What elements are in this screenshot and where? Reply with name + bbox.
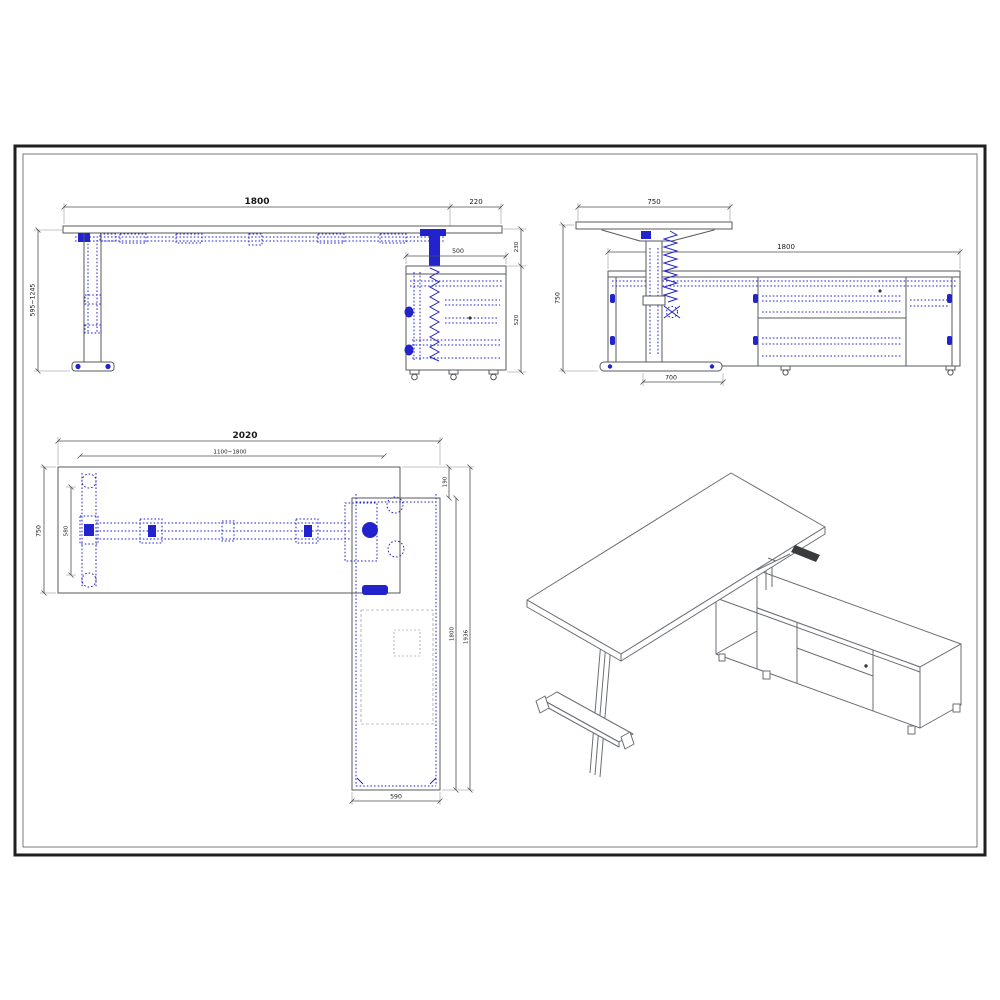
technical-drawing: 1800 220 bbox=[0, 0, 1000, 1000]
front-cabinet-width-label: 500 bbox=[452, 248, 464, 255]
iso-credenza-foot bbox=[719, 654, 725, 661]
iso-lock-keyhole bbox=[864, 664, 867, 667]
plan-cabinet-run-label: 1800 bbox=[450, 626, 456, 641]
side-foot-label: 700 bbox=[665, 375, 677, 382]
plan-cabinet-width-label: 590 bbox=[390, 794, 402, 801]
front-height-range-label: 595~1245 bbox=[30, 284, 37, 317]
front-overhang-label: 220 bbox=[469, 198, 482, 206]
front-cabinet-height-label: 520 bbox=[514, 314, 520, 325]
front-gap-label: 230 bbox=[514, 241, 520, 252]
front-pedestal-cabinet bbox=[405, 266, 507, 380]
iso-credenza-foot bbox=[763, 671, 770, 679]
side-desk-top bbox=[576, 222, 732, 229]
side-length-label: 1800 bbox=[777, 243, 795, 251]
plan-foot-span-label: 580 bbox=[64, 525, 70, 536]
front-width-label: 1800 bbox=[244, 197, 269, 207]
iso-credenza-foot bbox=[908, 726, 915, 734]
drawing-sheet: 1800 220 bbox=[0, 0, 1000, 1000]
front-lock-keyhole bbox=[468, 316, 471, 319]
side-lock-keyhole bbox=[878, 289, 881, 292]
side-depth-label: 750 bbox=[647, 198, 660, 206]
plan-depth-label: 750 bbox=[36, 525, 43, 537]
plan-frame-range-label: 1100~1800 bbox=[213, 450, 247, 456]
side-leg-foot bbox=[600, 362, 722, 371]
plan-lift-column bbox=[362, 522, 378, 538]
plan-overall-label: 2020 bbox=[232, 431, 257, 441]
plan-overall-depth-label: 1936 bbox=[464, 629, 470, 644]
side-height-label: 750 bbox=[555, 292, 562, 304]
iso-credenza-foot bbox=[953, 704, 960, 712]
plan-gap-label: 190 bbox=[443, 476, 449, 487]
